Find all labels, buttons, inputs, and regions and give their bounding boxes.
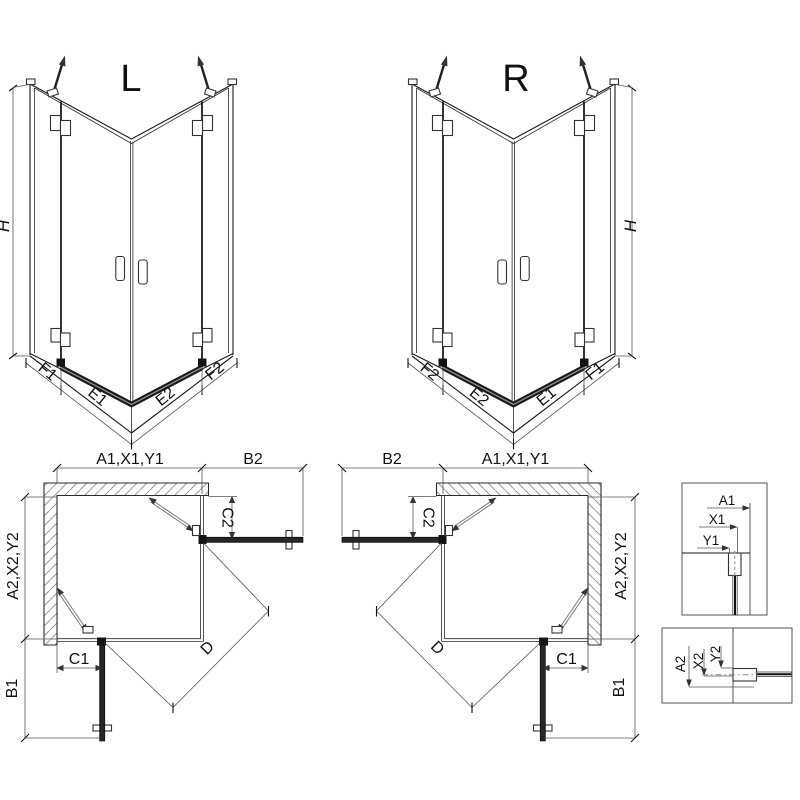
persp-right-e1-label: E1	[534, 384, 560, 410]
plan-right	[338, 464, 601, 741]
perspective-right	[408, 56, 636, 450]
persp-left-title: L	[120, 58, 141, 100]
plan-right-c2-label: C2	[420, 507, 437, 528]
persp-left-f1-label: F1	[35, 360, 60, 385]
detail-bottom-a2-label: A2	[673, 656, 688, 673]
plan-left-a1-label: A1,X1,Y1	[96, 451, 164, 468]
plan-right-a2-label: A2,X2,Y2	[613, 532, 630, 600]
plan-right-b1-label: B1	[611, 678, 628, 698]
shower-enclosure-technical-drawing: L H F1 E1 E2 F2 R H F2 E2 E1 F1 A1,X1,Y1…	[0, 0, 800, 800]
plan-left-b2-label: B2	[243, 451, 263, 468]
persp-right-f2-label: F2	[417, 360, 442, 385]
detail-top-y1-label: Y1	[703, 533, 720, 548]
persp-left-height-label: H	[0, 219, 13, 232]
detail-bottom-x2-label: X2	[691, 653, 706, 670]
detail-bottom-y2-label: Y2	[708, 646, 723, 663]
persp-left-e2-label: E2	[153, 384, 179, 410]
plan-left	[44, 464, 307, 741]
plan-left-c1-label: C1	[69, 651, 90, 668]
persp-left-e1-label: E1	[84, 384, 110, 410]
plan-left-c2-label: C2	[219, 507, 236, 528]
detail-top-a1-label: A1	[719, 493, 736, 508]
persp-right-title: R	[502, 58, 529, 100]
detail-top-x1-label: X1	[709, 512, 726, 527]
plan-right-c1-label: C1	[556, 651, 577, 668]
persp-right-height-label: H	[621, 219, 640, 232]
perspective-left	[9, 56, 237, 450]
plan-right-a1-label: A1,X1,Y1	[482, 451, 550, 468]
plan-left-b1-label: B1	[4, 679, 21, 699]
wall-profile-section	[702, 669, 792, 682]
plan-left-a2-label: A2,X2,Y2	[5, 532, 22, 600]
wall-profile-section	[729, 551, 742, 616]
plan-left-depth-dim	[21, 493, 100, 742]
plan-right-b2-label: B2	[382, 451, 402, 468]
